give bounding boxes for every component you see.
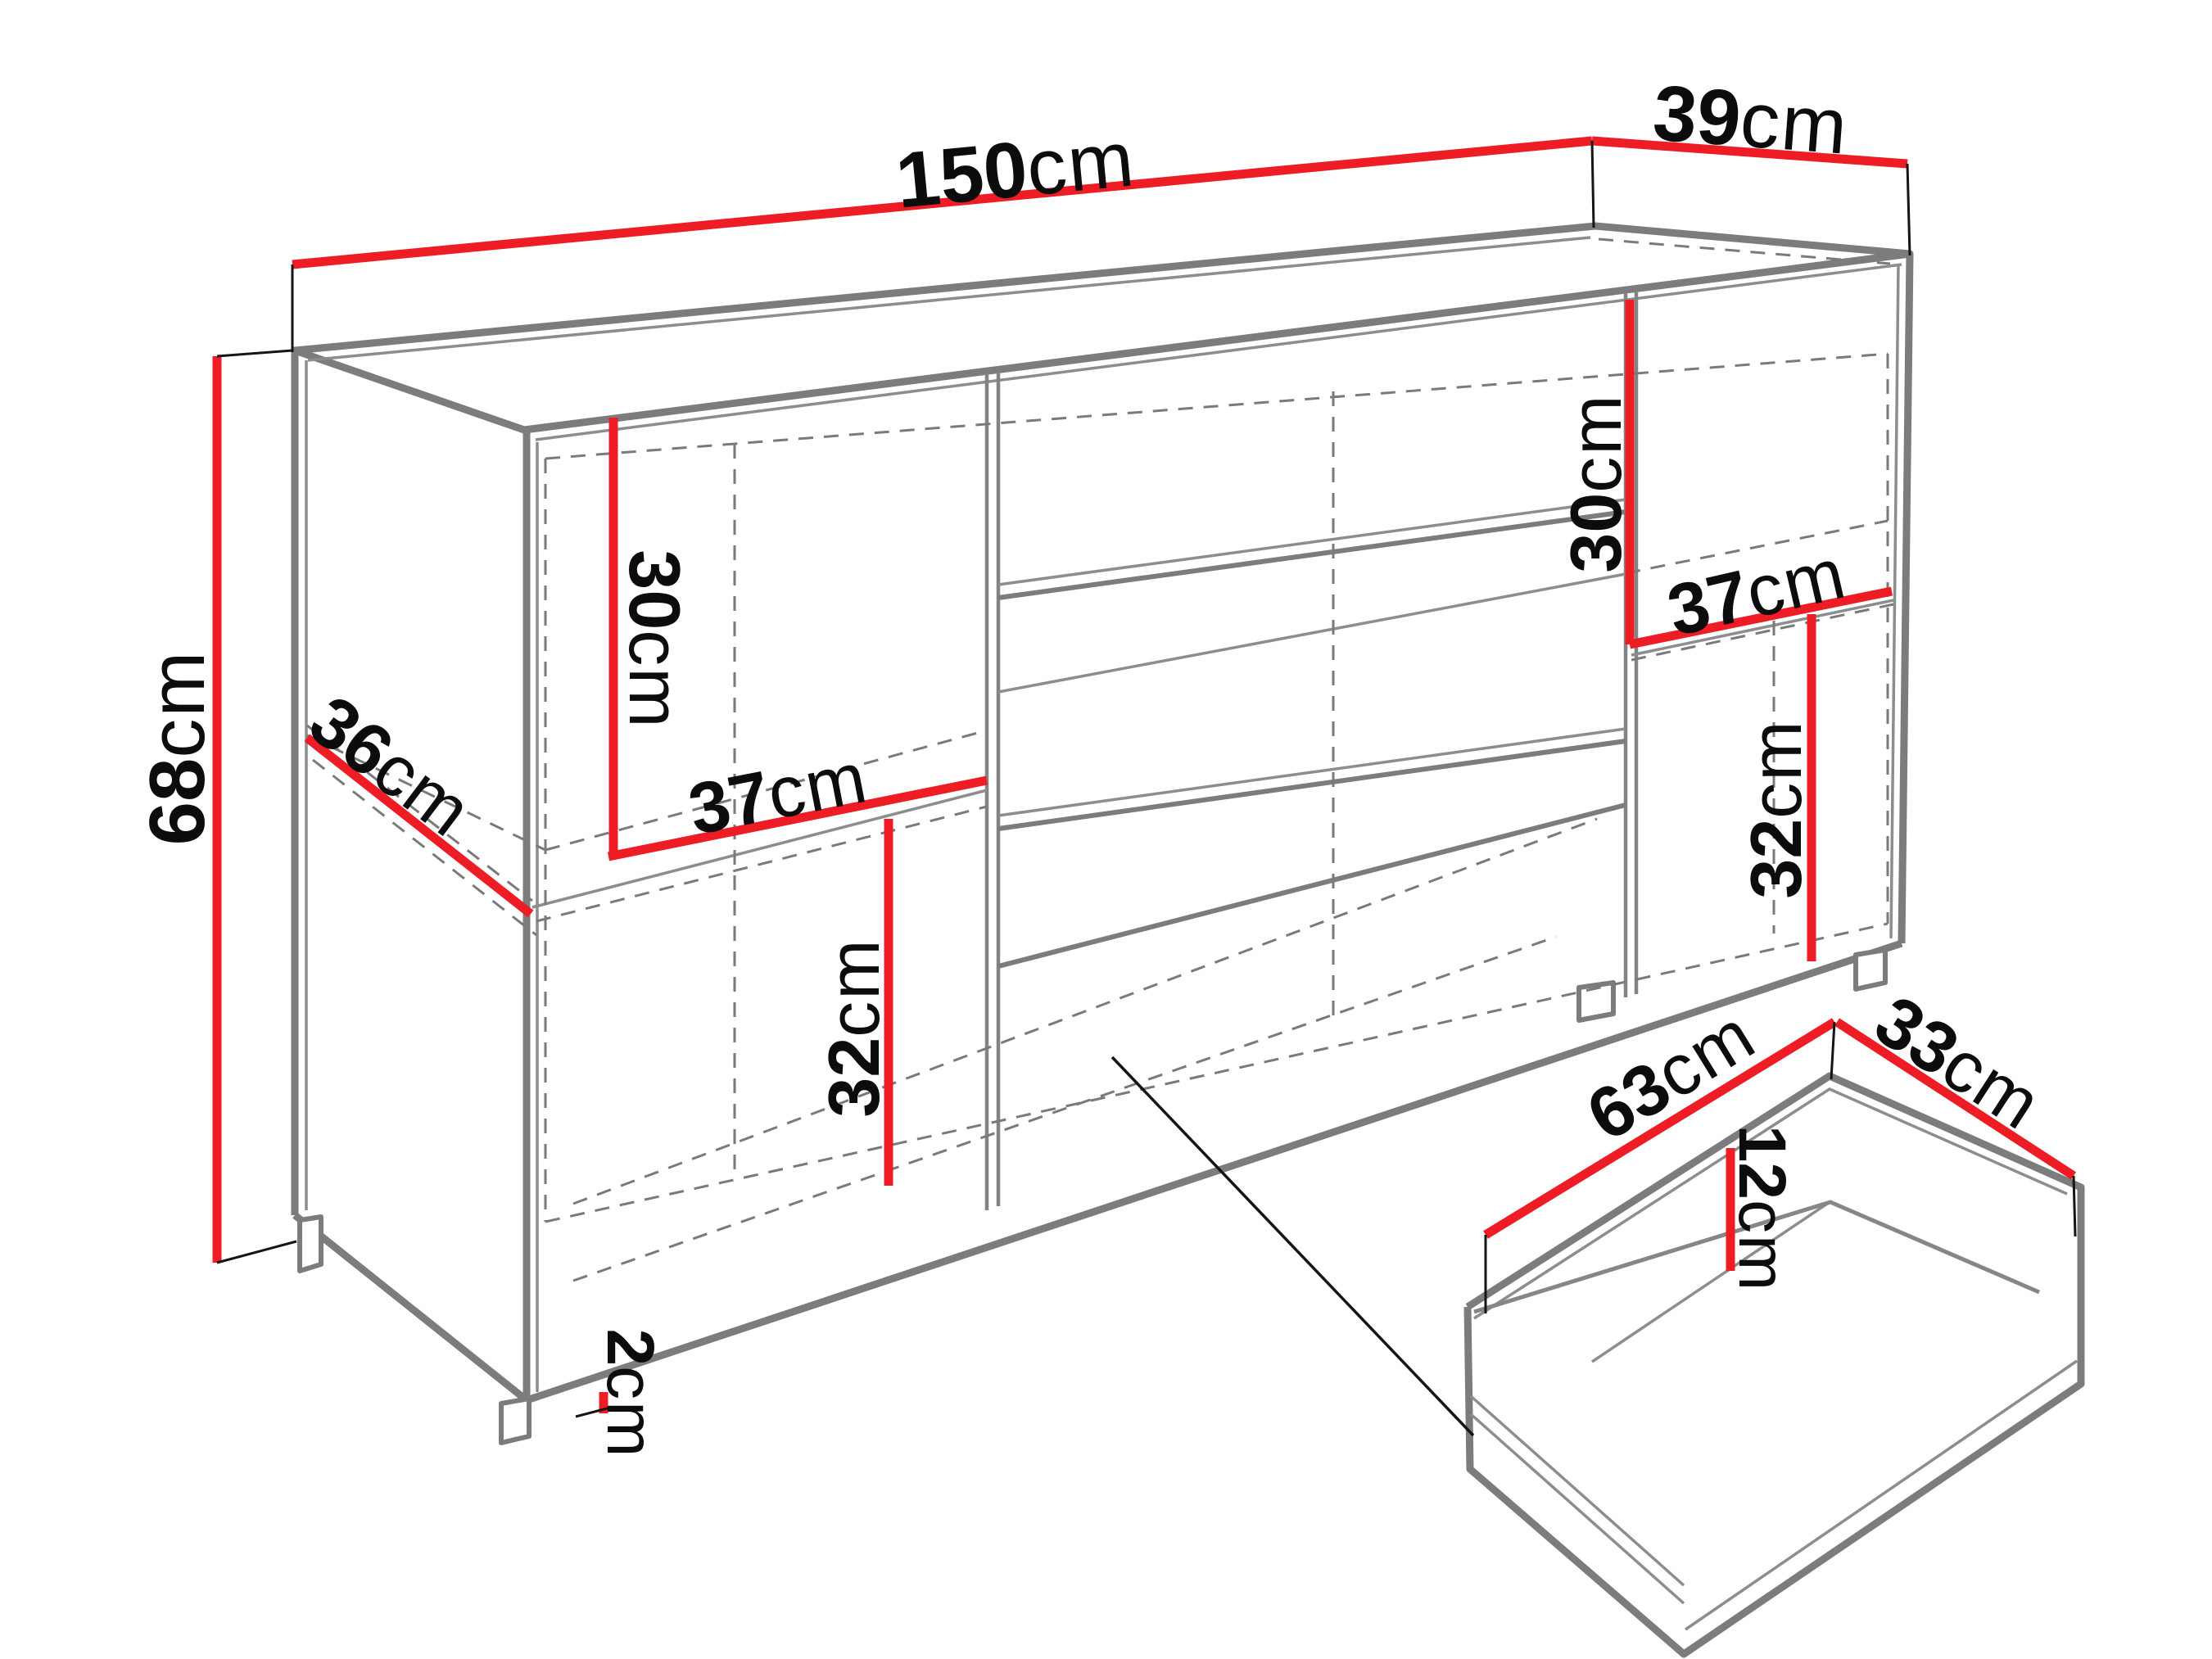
label-right-upper-height: 30cm	[1555, 393, 1636, 572]
foot-back-left	[300, 1217, 321, 1271]
foot-right	[1856, 950, 1885, 989]
label-depth: 39cm	[1650, 69, 1852, 171]
dimension-diagram: 150cm 39cm 68cm 30cm 36cm 37cm 32cm 30cm…	[0, 0, 2212, 1659]
sideboard-dimension-drawing: 150cm 39cm 68cm 30cm 36cm 37cm 32cm 30cm…	[0, 0, 2212, 1659]
label-drawer-depth: 33cm	[1861, 979, 2056, 1145]
cabinet-top-face	[295, 226, 1910, 430]
label-foot-height: 2cm	[594, 1329, 668, 1459]
label-shelf-depth: 36cm	[296, 680, 488, 852]
label-left-lower-height: 32cm	[813, 938, 894, 1117]
label-height: 68cm	[133, 650, 221, 846]
drawer-pointer-line	[1112, 1057, 1473, 1435]
label-right-lower-height: 32cm	[1735, 719, 1816, 898]
label-left-upper-height: 30cm	[615, 549, 696, 729]
label-width: 150cm	[892, 115, 1138, 225]
foot-front-left	[501, 1399, 529, 1443]
label-left-shelf-width: 37cm	[682, 735, 874, 849]
label-drawer-height: 12cm	[1726, 1125, 1800, 1293]
